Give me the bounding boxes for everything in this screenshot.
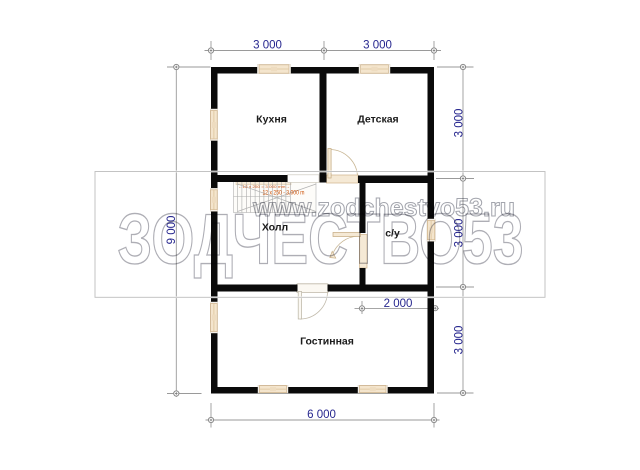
- svg-text:←12 x 250 = 3 000 mm→: ←12 x 250 = 3 000 mm→: [238, 184, 290, 189]
- svg-text:ЗОДЧЕСТВО53: ЗОДЧЕСТВО53: [118, 201, 524, 280]
- svg-text:3 000: 3 000: [454, 326, 466, 355]
- svg-text:3 000: 3 000: [454, 109, 466, 138]
- svg-text:3 000: 3 000: [363, 40, 392, 52]
- svg-text:Гостинная: Гостинная: [300, 336, 354, 348]
- svg-text:2 000: 2 000: [384, 298, 413, 310]
- svg-text:6 000: 6 000: [307, 409, 336, 421]
- svg-text:Кухня: Кухня: [256, 114, 287, 126]
- svg-text:Детская: Детская: [357, 114, 398, 126]
- svg-text:3 000: 3 000: [253, 40, 282, 52]
